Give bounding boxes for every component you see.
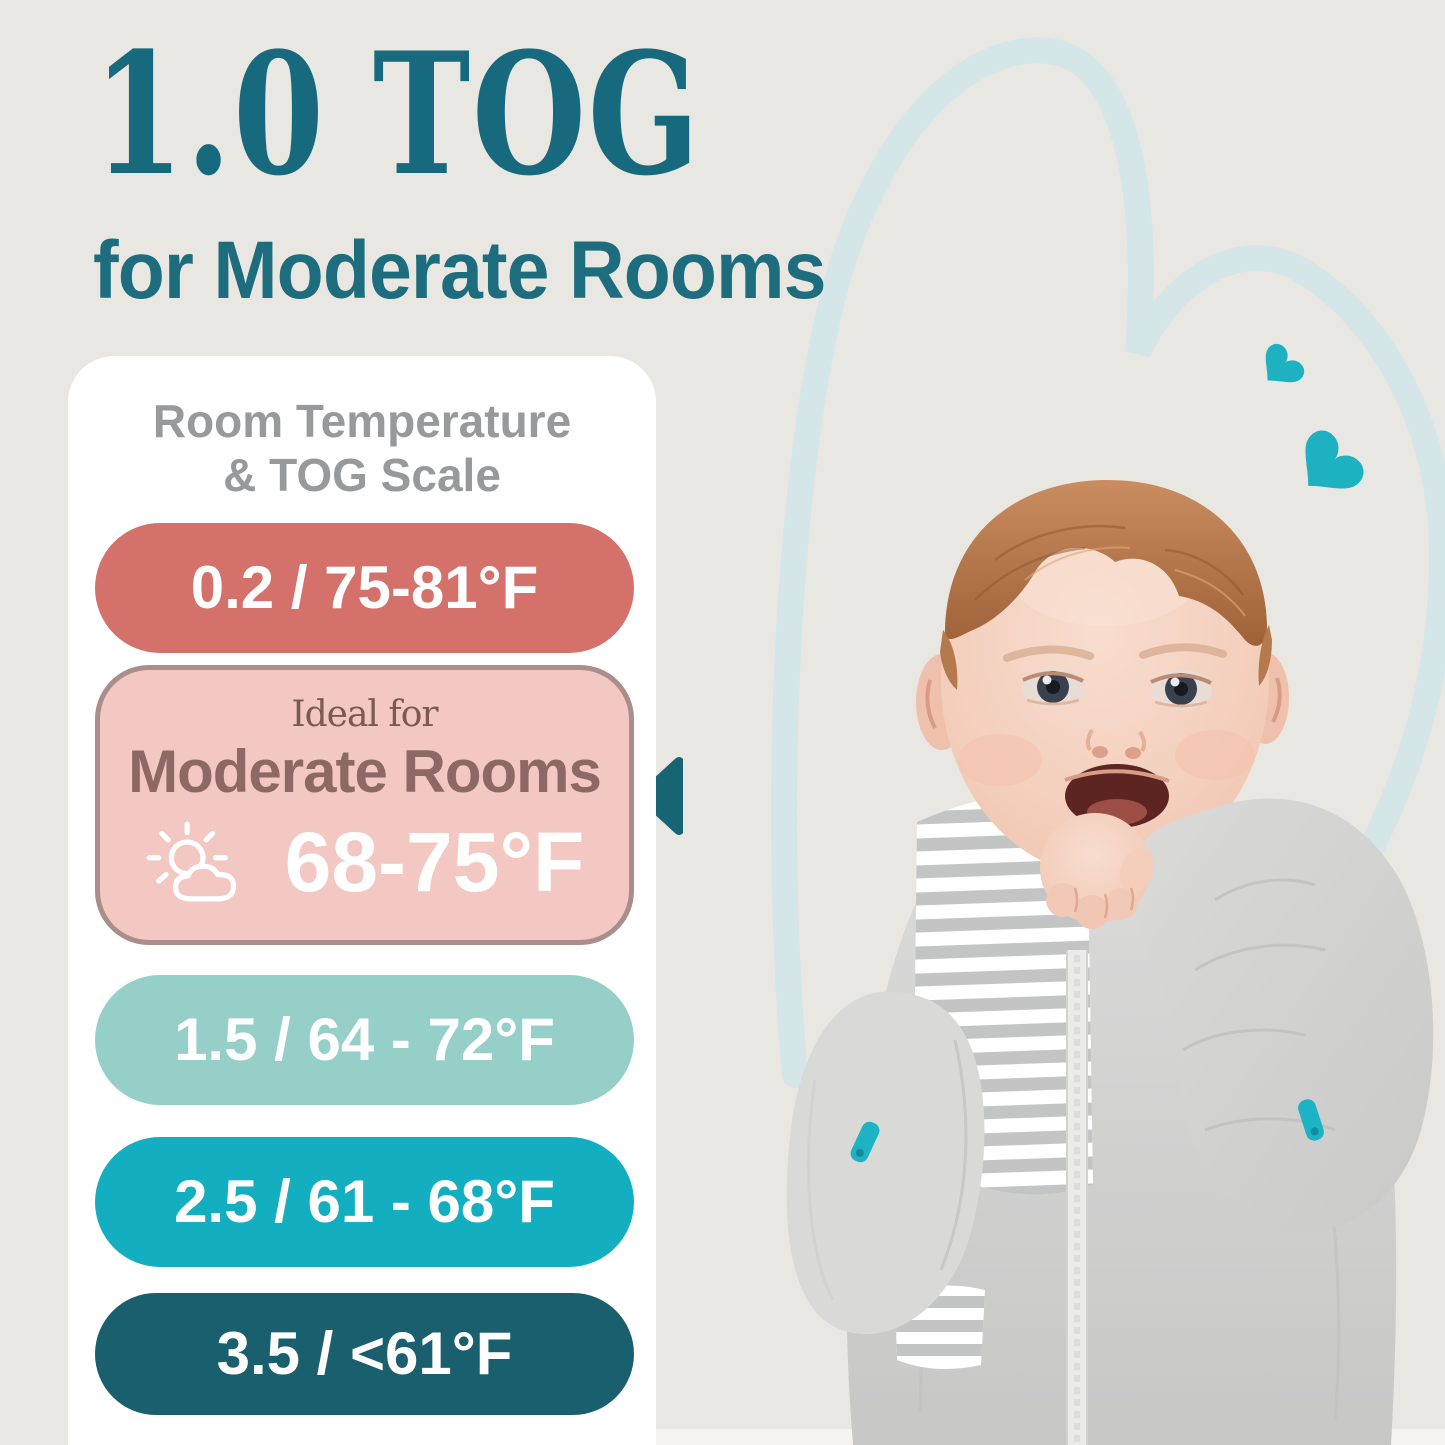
page-title: 1.0 TOG (93, 26, 701, 202)
headline-block: 1.0 TOG for Moderate Rooms (93, 26, 873, 318)
tog-pill-2-5: 2.5 / 61 - 68°F (95, 1137, 634, 1267)
heart-icon-small (1252, 340, 1309, 397)
sun-behind-cloud-icon (145, 819, 263, 905)
ideal-temperature: 68-75°F (285, 814, 585, 911)
tog-pill-1-5: 1.5 / 64 - 72°F (95, 975, 634, 1105)
page-subtitle: for Moderate Rooms (93, 224, 826, 318)
tog-pill-3-5: 3.5 / <61°F (95, 1293, 634, 1415)
tog-pill-0-2: 0.2 / 75-81°F (95, 523, 634, 653)
ideal-pretitle: Ideal for (291, 694, 437, 735)
tog-infographic: 1.0 TOG for Moderate Rooms Room Temperat… (0, 0, 1445, 1445)
zipper (1067, 950, 1087, 1445)
tog-scale-panel: Room Temperature & TOG Scale 0.2 / 75-81… (68, 356, 656, 1445)
ideal-range-card: Ideal for Moderate Rooms 68-75°F (95, 665, 634, 945)
scale-heading-line2: & TOG Scale (68, 448, 656, 502)
ideal-temp-row: 68-75°F (145, 814, 585, 911)
ideal-room-type: Moderate Rooms (128, 737, 601, 806)
baby-photo (745, 430, 1445, 1445)
scale-heading-line1: Room Temperature (68, 394, 656, 448)
scale-heading: Room Temperature & TOG Scale (68, 394, 656, 503)
